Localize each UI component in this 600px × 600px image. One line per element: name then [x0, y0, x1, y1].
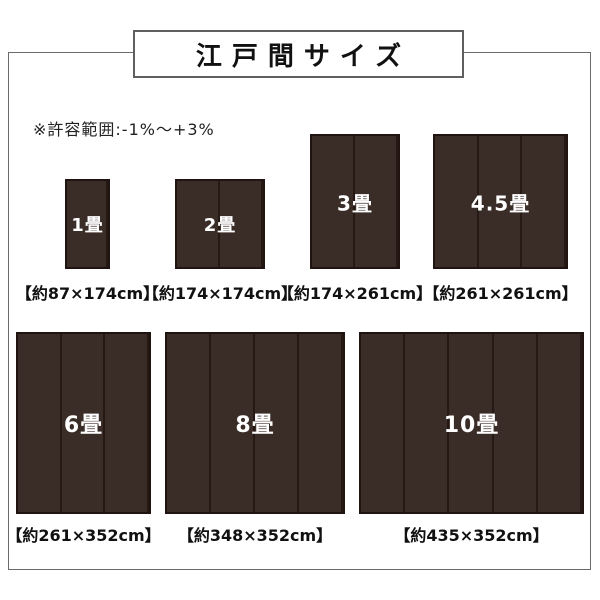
mat-8jo: 8畳: [165, 332, 345, 514]
mat-45jo: 4.5畳: [433, 134, 568, 269]
mat-dimensions-label: 【約348×352cm】: [178, 522, 332, 546]
mat-dimensions-label: 【約261×352cm】: [6, 522, 160, 546]
page-title: 江戸間サイズ: [186, 36, 411, 73]
mat-dimensions-label: 【約174×261cm】: [278, 280, 432, 304]
mat-dimensions-label: 【約174×174cm】: [143, 280, 297, 304]
mat-panel: [299, 334, 343, 512]
mat-dimensions-label: 【約435×352cm】: [394, 522, 548, 546]
tatami-size-chart: 江戸間サイズ ※許容範囲:-1%〜+3% 1畳【約87×174cm】2畳【約17…: [0, 0, 600, 600]
mat-2jo: 2畳: [175, 179, 265, 269]
tolerance-note: ※許容範囲:-1%〜+3%: [33, 116, 215, 140]
mat-tatami-count-label: 10畳: [444, 407, 500, 439]
mat-6jo: 6畳: [16, 332, 151, 514]
mat-dimensions-label: 【約261×261cm】: [423, 280, 577, 304]
mat-tatami-count-label: 2畳: [204, 211, 237, 237]
mat-tatami-count-label: 4.5畳: [471, 187, 530, 216]
mat-tatami-count-label: 6畳: [64, 407, 103, 439]
mat-panel: [18, 334, 62, 512]
mat-panel: [105, 334, 149, 512]
mat-1jo: 1畳: [65, 179, 110, 269]
mat-tatami-count-label: 8畳: [235, 407, 274, 439]
mat-10jo: 10畳: [359, 332, 584, 514]
title-box: 江戸間サイズ: [133, 30, 464, 78]
mat-panel: [538, 334, 582, 512]
mat-tatami-count-label: 1畳: [71, 211, 104, 237]
mat-tatami-count-label: 3畳: [337, 187, 373, 216]
mat-panel: [167, 334, 211, 512]
mat-dimensions-label: 【約87×174cm】: [16, 280, 159, 304]
mat-panel: [361, 334, 405, 512]
mat-3jo: 3畳: [310, 134, 400, 269]
mat-panel: [494, 334, 538, 512]
